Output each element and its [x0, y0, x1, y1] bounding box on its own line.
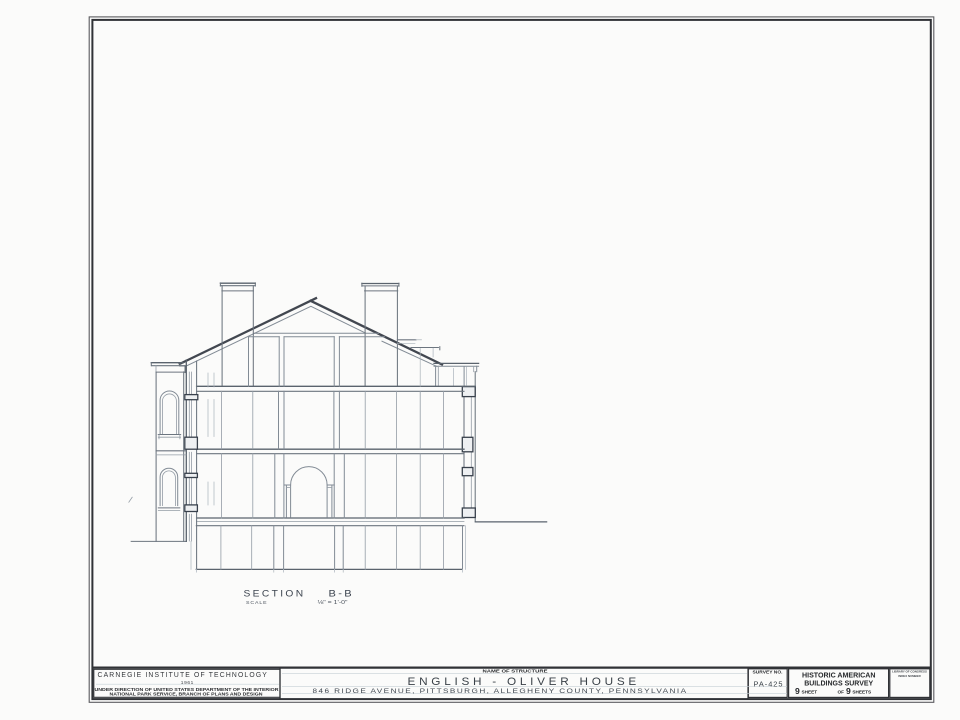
svg-text:SHEETS: SHEETS — [852, 689, 871, 694]
svg-text:SCALE: SCALE — [246, 600, 268, 605]
svg-text:SHEET: SHEET — [802, 689, 818, 694]
svg-text:9: 9 — [846, 686, 851, 696]
svg-text:⅛" = 1'-0": ⅛" = 1'-0" — [318, 600, 348, 606]
svg-text:1961: 1961 — [181, 680, 194, 686]
svg-text:PA-425: PA-425 — [754, 680, 784, 689]
svg-text:NATIONAL PARK SERVICE, BRANCH: NATIONAL PARK SERVICE, BRANCH OF PLANS A… — [110, 691, 263, 696]
svg-text:B-B: B-B — [329, 589, 355, 600]
svg-text:CARNEGIE INSTITUTE OF TECHN: CARNEGIE INSTITUTE OF TECHNOLOGY — [98, 672, 269, 679]
svg-text:ENGLISH - OLIVER HOUSE: ENGLISH - OLIVER HOUSE — [408, 676, 641, 688]
svg-text:SURVEY NO.: SURVEY NO. — [753, 669, 783, 674]
svg-text:BUILDINGS SURVEY: BUILDINGS SURVEY — [804, 678, 873, 687]
svg-text:OF: OF — [838, 689, 845, 694]
svg-text:846 RIDGE AVENUE, PITTSBURGH,: 846 RIDGE AVENUE, PITTSBURGH, ALLEGHENY … — [313, 688, 688, 695]
svg-text:NAME OF STRUCTURE: NAME OF STRUCTURE — [483, 668, 548, 673]
svg-text:INDEX NUMBER: INDEX NUMBER — [898, 674, 921, 678]
svg-text:9: 9 — [795, 686, 800, 696]
svg-text:SECTION: SECTION — [244, 589, 306, 600]
